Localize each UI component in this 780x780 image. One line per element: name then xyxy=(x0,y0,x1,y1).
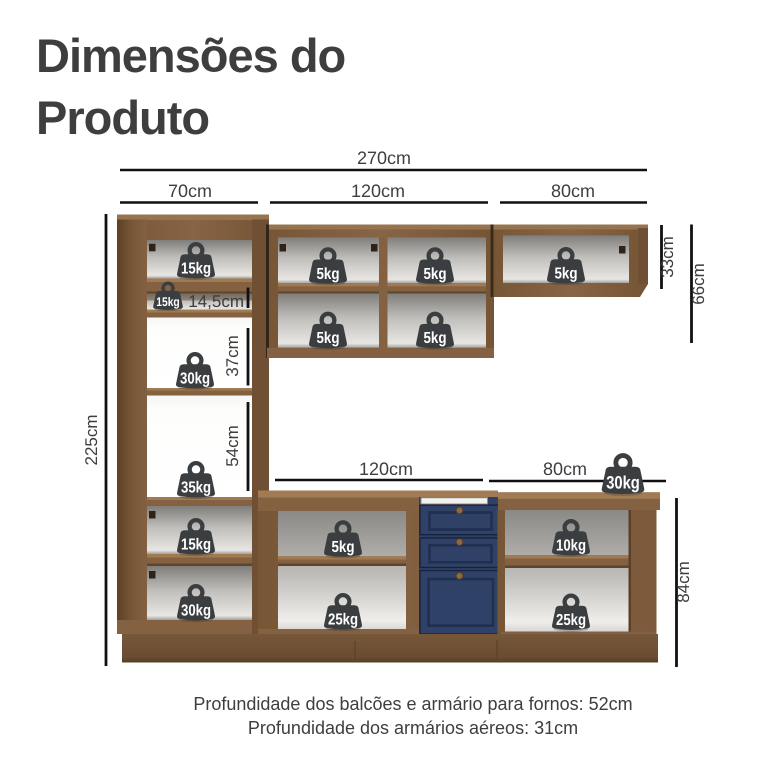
svg-text:270cm: 270cm xyxy=(357,148,411,168)
svg-text:15kg: 15kg xyxy=(181,537,211,554)
svg-text:70cm: 70cm xyxy=(168,181,212,201)
svg-text:33cm: 33cm xyxy=(658,236,677,278)
svg-text:80cm: 80cm xyxy=(551,181,595,201)
svg-text:25kg: 25kg xyxy=(556,612,586,629)
svg-text:54cm: 54cm xyxy=(223,425,242,467)
svg-text:5kg: 5kg xyxy=(332,539,355,556)
svg-text:5kg: 5kg xyxy=(317,266,340,283)
svg-text:5kg: 5kg xyxy=(555,266,578,283)
svg-text:25kg: 25kg xyxy=(328,612,358,629)
svg-text:5kg: 5kg xyxy=(424,330,447,347)
svg-text:10kg: 10kg xyxy=(556,538,586,555)
svg-text:35kg: 35kg xyxy=(181,480,211,497)
svg-text:15kg: 15kg xyxy=(156,296,179,309)
svg-text:120cm: 120cm xyxy=(359,459,413,479)
svg-text:225cm: 225cm xyxy=(82,414,101,465)
svg-text:5kg: 5kg xyxy=(317,330,340,347)
svg-text:66cm: 66cm xyxy=(689,263,708,305)
svg-text:84cm: 84cm xyxy=(674,561,693,603)
svg-text:30kg: 30kg xyxy=(606,474,640,493)
svg-text:14,5cm: 14,5cm xyxy=(188,292,244,311)
svg-text:30kg: 30kg xyxy=(180,371,210,388)
svg-text:5kg: 5kg xyxy=(424,266,447,283)
svg-text:120cm: 120cm xyxy=(351,181,405,201)
svg-text:37cm: 37cm xyxy=(223,335,242,377)
svg-text:80cm: 80cm xyxy=(543,459,587,479)
svg-text:15kg: 15kg xyxy=(181,261,211,278)
svg-text:30kg: 30kg xyxy=(181,603,211,620)
